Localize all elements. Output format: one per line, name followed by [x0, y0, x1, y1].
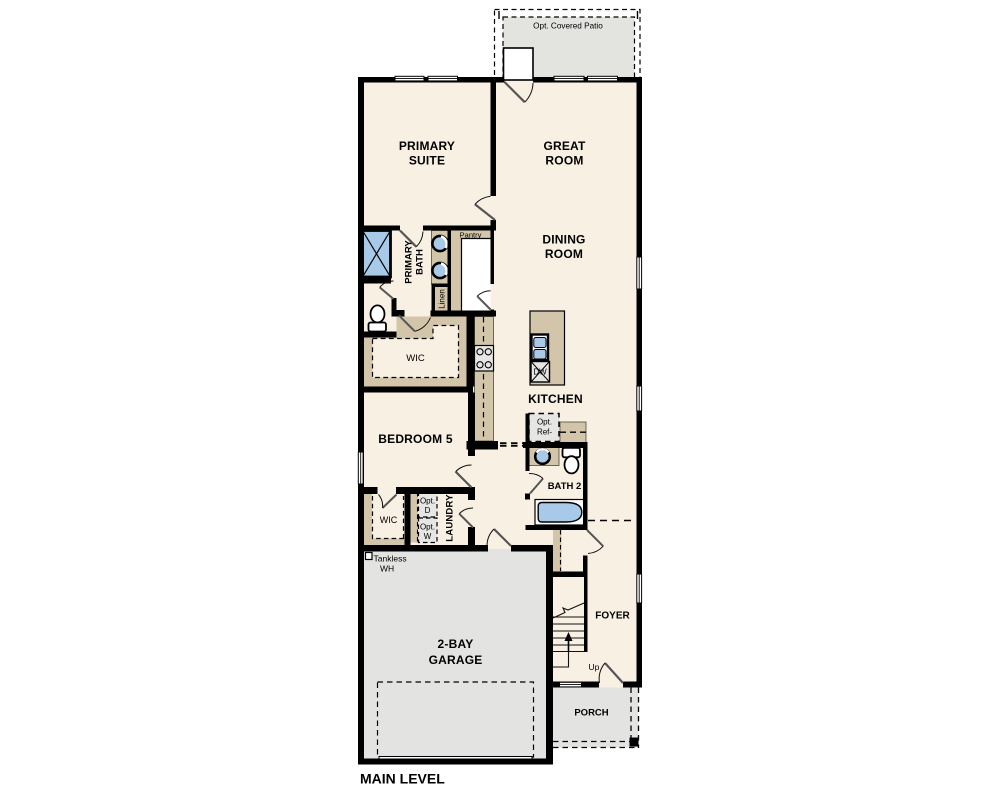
svg-text:D: D [425, 506, 431, 515]
svg-text:MAIN LEVEL: MAIN LEVEL [360, 771, 445, 787]
svg-text:Tankless: Tankless [374, 554, 407, 564]
svg-text:DINING: DINING [542, 233, 585, 247]
svg-text:Pantry: Pantry [460, 231, 482, 240]
svg-text:BATH: BATH [415, 249, 426, 275]
svg-text:Opt.: Opt. [537, 418, 552, 427]
svg-text:WH: WH [380, 564, 394, 574]
svg-text:Opt. Covered Patio: Opt. Covered Patio [533, 22, 603, 31]
svg-text:SUITE: SUITE [409, 154, 445, 168]
svg-text:Linen: Linen [438, 289, 447, 309]
svg-text:PRIMARY: PRIMARY [403, 240, 414, 284]
svg-text:Opt.: Opt. [420, 523, 435, 532]
svg-text:KITCHEN: KITCHEN [528, 392, 583, 406]
svg-text:BEDROOM 5: BEDROOM 5 [378, 432, 453, 446]
svg-text:PRIMARY: PRIMARY [399, 139, 455, 153]
svg-text:WIC: WIC [380, 515, 398, 525]
svg-text:FOYER: FOYER [595, 611, 630, 622]
svg-text:W: W [424, 532, 432, 541]
svg-text:GARAGE: GARAGE [429, 653, 483, 667]
svg-text:WIC: WIC [406, 353, 425, 364]
svg-text:GREAT: GREAT [543, 139, 586, 153]
svg-text:DW: DW [533, 368, 547, 377]
svg-text:ROOM: ROOM [545, 154, 583, 168]
svg-text:2-BAY: 2-BAY [438, 637, 474, 651]
svg-text:Opt.: Opt. [420, 497, 435, 506]
svg-text:BATH 2: BATH 2 [548, 481, 582, 492]
svg-text:LAUNDRY: LAUNDRY [445, 494, 456, 542]
svg-text:ROOM: ROOM [545, 247, 583, 261]
svg-text:Up: Up [589, 662, 600, 672]
svg-text:Ref-: Ref- [537, 428, 552, 437]
svg-text:PORCH: PORCH [574, 708, 608, 719]
